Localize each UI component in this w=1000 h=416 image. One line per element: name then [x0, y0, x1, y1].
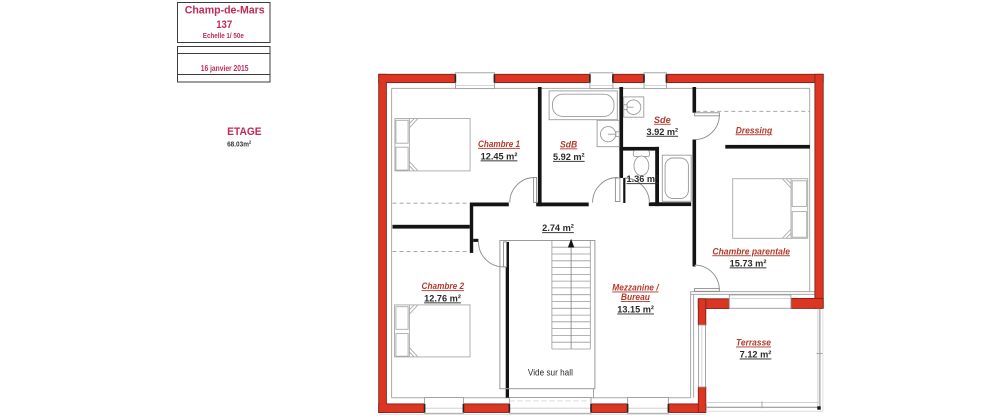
svg-text:ETAGE: ETAGE — [227, 126, 262, 138]
svg-text:15.73 m²: 15.73 m² — [730, 258, 767, 268]
svg-text:3.92 m²: 3.92 m² — [646, 127, 678, 137]
svg-text:Champ-de-Mars: Champ-de-Mars — [185, 4, 265, 16]
svg-text:Vide sur hall: Vide sur hall — [528, 367, 573, 377]
svg-text:Chambre parentale: Chambre parentale — [712, 246, 790, 256]
svg-text:Echelle 1/ 50e: Echelle 1/ 50e — [203, 31, 244, 40]
svg-text:Dressing: Dressing — [736, 125, 773, 135]
svg-text:Chambre 2: Chambre 2 — [422, 281, 465, 291]
svg-text:137: 137 — [216, 19, 232, 31]
svg-text:13.15 m²: 13.15 m² — [617, 305, 654, 315]
svg-text:12.76 m²: 12.76 m² — [424, 293, 461, 303]
svg-text:Sde: Sde — [654, 115, 671, 125]
svg-text:1.36 m²: 1.36 m² — [626, 174, 658, 184]
svg-text:Terrasse: Terrasse — [736, 338, 771, 348]
svg-text:5.92 m²: 5.92 m² — [553, 152, 585, 162]
svg-text:16 janvier 2015: 16 janvier 2015 — [201, 64, 249, 73]
svg-text:Bureau: Bureau — [621, 292, 651, 302]
svg-text:SdB: SdB — [560, 139, 578, 149]
svg-text:Mezzanine /: Mezzanine / — [612, 283, 660, 293]
svg-text:2.74 m²: 2.74 m² — [542, 223, 574, 233]
svg-text:68.03m²: 68.03m² — [227, 139, 251, 148]
svg-text:12.45 m²: 12.45 m² — [481, 151, 518, 161]
svg-text:7.12 m²: 7.12 m² — [740, 350, 772, 360]
svg-text:Chambre 1: Chambre 1 — [478, 139, 520, 149]
